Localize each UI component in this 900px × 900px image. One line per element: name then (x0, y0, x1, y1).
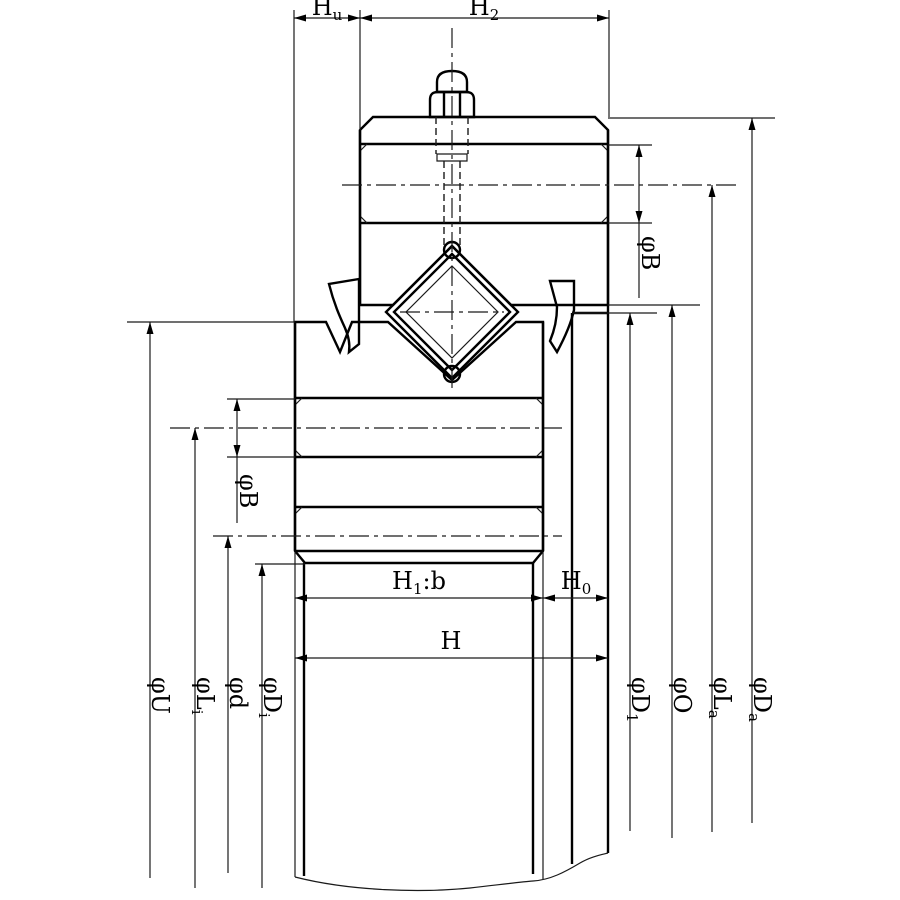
dim-label-phi-di: φDi (255, 677, 286, 718)
dimension-phi-di: φDi (255, 564, 305, 888)
bearing-cross-section-drawing: Hu H2 φB φB φU φLi φd (0, 0, 900, 900)
dim-label-h2: H2 (469, 0, 499, 24)
dimension-h1b: H1:b (295, 567, 543, 602)
dimension-h: H (295, 627, 608, 662)
dim-label-phi-da: φDa (745, 677, 776, 722)
dim-label-phi-o: φO (668, 677, 696, 713)
dim-label-h0: H0 (561, 567, 591, 598)
dimension-phi-b-left: φB (227, 399, 295, 523)
dimension-phi-li: φLi (188, 428, 219, 888)
dim-label-phi-b-right: φB (636, 236, 664, 270)
dim-label-h: H (441, 627, 462, 655)
dim-label-phi-u: φU (146, 677, 174, 714)
dimension-h2: H2 (360, 0, 609, 117)
dimension-phi-b-right: φB (608, 145, 664, 298)
dim-label-phi-b-left: φB (234, 474, 262, 508)
drawing-svg: Hu H2 φB φB φU φLi φd (0, 0, 900, 900)
inner-ring-section (295, 322, 543, 563)
dimension-phi-u: φU (127, 322, 295, 878)
dim-label-phi-d1: φD1 (623, 677, 654, 723)
dim-label-phi-la: φLa (705, 677, 736, 719)
dim-label-hu: Hu (312, 0, 343, 24)
dimension-h0: H0 (543, 567, 608, 602)
break-line (295, 853, 608, 890)
seal-right (550, 281, 574, 352)
dimension-phi-o: φO (608, 305, 700, 838)
dimension-hu: Hu (294, 0, 360, 322)
dimension-phi-la: φLa (705, 185, 736, 832)
dim-label-h1b: H1:b (392, 567, 446, 598)
dimension-phi-d1: φD1 (572, 313, 657, 831)
dimension-phi-d-small: φd (224, 536, 252, 873)
dim-label-phi-li: φLi (188, 677, 219, 715)
dim-label-phi-d-small: φd (224, 677, 252, 709)
